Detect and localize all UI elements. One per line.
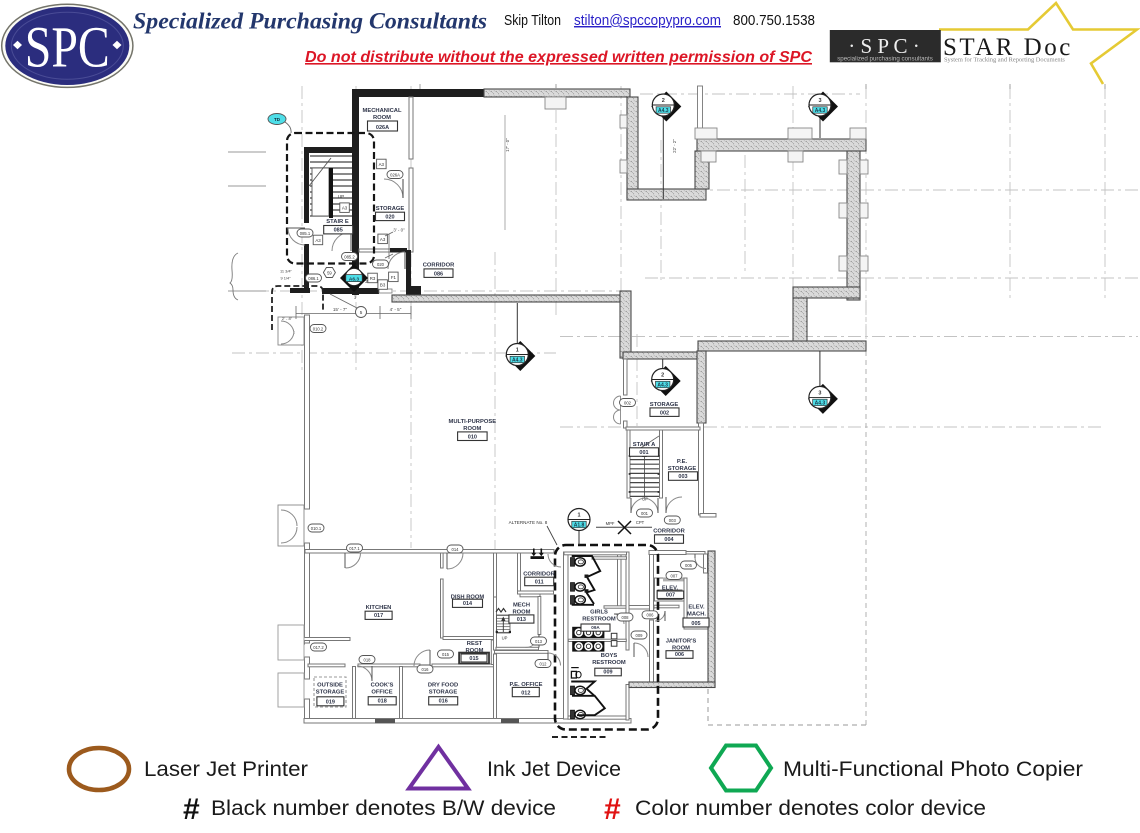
svg-text:ALTERNATE No. 8: ALTERNATE No. 8 bbox=[509, 520, 548, 525]
svg-text:009: 009 bbox=[636, 633, 644, 638]
svg-text:A3: A3 bbox=[342, 206, 348, 211]
svg-text:001: 001 bbox=[639, 450, 648, 456]
svg-text:· S P C ·: · S P C · bbox=[848, 34, 920, 58]
svg-text:005: 005 bbox=[691, 621, 700, 627]
svg-text:STORAGE: STORAGE bbox=[429, 689, 458, 695]
svg-text:#: # bbox=[183, 793, 200, 826]
svg-text:CORRIDOR: CORRIDOR bbox=[653, 529, 685, 535]
svg-text:STORAGE: STORAGE bbox=[650, 402, 679, 408]
svg-text:UP: UP bbox=[502, 636, 508, 641]
svg-text:013: 013 bbox=[535, 639, 543, 644]
svg-text:A4.3: A4.3 bbox=[658, 108, 669, 114]
svg-text:3: 3 bbox=[818, 98, 821, 104]
svg-text:010.1: 010.1 bbox=[311, 526, 322, 531]
svg-text:System for Tracking and Report: System for Tracking and Reporting Docume… bbox=[944, 57, 1065, 64]
svg-text:09A: 09A bbox=[591, 625, 600, 630]
svg-text:3: 3 bbox=[818, 391, 821, 397]
svg-text:JANITOR'S: JANITOR'S bbox=[666, 639, 697, 645]
svg-text:086: 086 bbox=[434, 271, 443, 277]
svg-text:A1.8: A1.8 bbox=[574, 523, 585, 529]
svg-text:MACH.: MACH. bbox=[687, 611, 706, 617]
svg-text:017.2: 017.2 bbox=[313, 645, 324, 650]
svg-text:BOYS: BOYS bbox=[601, 653, 618, 659]
svg-text:B3: B3 bbox=[380, 283, 386, 288]
svg-text:015: 015 bbox=[442, 652, 450, 657]
svg-text:4' - 5": 4' - 5" bbox=[390, 307, 402, 312]
svg-text:005: 005 bbox=[685, 563, 693, 568]
svg-text:ROOM: ROOM bbox=[373, 115, 391, 121]
svg-text:DRY FOOD: DRY FOOD bbox=[428, 683, 458, 689]
svg-text:012: 012 bbox=[521, 690, 530, 696]
svg-text:1: 1 bbox=[516, 348, 519, 354]
svg-text:2' - 8": 2' - 8" bbox=[282, 316, 293, 321]
svg-text:9 1/4": 9 1/4" bbox=[280, 276, 291, 281]
svg-text:MECH: MECH bbox=[513, 603, 530, 609]
svg-text:008: 008 bbox=[622, 615, 630, 620]
svg-text:STORAGE: STORAGE bbox=[668, 466, 697, 472]
svg-text:1: 1 bbox=[577, 513, 580, 519]
svg-text:2: 2 bbox=[662, 98, 665, 104]
svg-text:stilton@spccopypro.com: stilton@spccopypro.com bbox=[574, 13, 721, 29]
svg-text:Do not distribute without the: Do not distribute without the expressed … bbox=[305, 49, 812, 66]
svg-text:17' - 0": 17' - 0" bbox=[505, 138, 510, 152]
svg-text:018: 018 bbox=[364, 657, 372, 662]
svg-text:019: 019 bbox=[326, 700, 335, 706]
svg-text:TD: TD bbox=[274, 117, 281, 122]
svg-text:RESTROOM: RESTROOM bbox=[592, 660, 626, 666]
svg-text:001: 001 bbox=[641, 511, 649, 516]
svg-text:5: 5 bbox=[360, 310, 363, 315]
svg-text:013: 013 bbox=[517, 617, 526, 623]
svg-text:085.1: 085.1 bbox=[300, 231, 311, 236]
svg-text:P.E.: P.E. bbox=[677, 459, 688, 465]
svg-text:CORRIDOR: CORRIDOR bbox=[523, 572, 555, 578]
svg-text:REST: REST bbox=[467, 641, 483, 647]
svg-text:CORRIDOR: CORRIDOR bbox=[423, 263, 455, 269]
svg-text:F1: F1 bbox=[391, 275, 397, 280]
svg-text:OFFICE: OFFICE bbox=[371, 689, 392, 695]
svg-text:014: 014 bbox=[463, 601, 473, 607]
svg-text:Black number denotes B/W devic: Black number denotes B/W device bbox=[211, 797, 556, 820]
svg-text:MECHANICAL: MECHANICAL bbox=[363, 108, 402, 114]
svg-text:007: 007 bbox=[671, 573, 679, 578]
svg-text:Specialized Purchasing Consult: Specialized Purchasing Consultants bbox=[133, 9, 487, 35]
svg-text:016: 016 bbox=[422, 667, 430, 672]
svg-text:085: 085 bbox=[334, 228, 343, 234]
svg-text:A4.3: A4.3 bbox=[657, 383, 668, 389]
svg-text:002: 002 bbox=[660, 410, 669, 416]
svg-text:22' - 2": 22' - 2" bbox=[672, 139, 677, 153]
svg-text:026A: 026A bbox=[376, 125, 389, 131]
svg-text:#: # bbox=[604, 793, 621, 826]
svg-text:Color number denotes color dev: Color number denotes color device bbox=[635, 797, 986, 820]
svg-text:014: 014 bbox=[452, 547, 460, 552]
svg-text:017: 017 bbox=[374, 613, 383, 619]
svg-text:017.1: 017.1 bbox=[349, 546, 360, 551]
svg-text:MPF: MPF bbox=[606, 521, 615, 526]
svg-text:011: 011 bbox=[535, 580, 544, 586]
svg-text:Skip Tilton: Skip Tilton bbox=[504, 13, 561, 29]
svg-text:STAIR E: STAIR E bbox=[326, 219, 349, 225]
svg-text:59: 59 bbox=[327, 271, 332, 276]
svg-text:015: 015 bbox=[469, 656, 478, 662]
svg-text:006: 006 bbox=[675, 652, 684, 658]
svg-text:020: 020 bbox=[385, 214, 394, 220]
svg-text:016: 016 bbox=[439, 699, 448, 705]
svg-text:COOK'S: COOK'S bbox=[371, 683, 394, 689]
svg-text:A3: A3 bbox=[380, 237, 386, 242]
svg-text:specialized purchasing consult: specialized purchasing consultants bbox=[837, 56, 933, 63]
svg-text:085.2: 085.2 bbox=[344, 254, 355, 259]
svg-text:003: 003 bbox=[669, 518, 677, 523]
svg-text:007: 007 bbox=[666, 592, 675, 598]
svg-text:R3: R3 bbox=[370, 276, 376, 281]
svg-text:Ink Jet Device: Ink Jet Device bbox=[487, 758, 621, 781]
svg-text:GIRLS: GIRLS bbox=[590, 610, 608, 616]
svg-text:STORAGE: STORAGE bbox=[316, 689, 345, 695]
svg-text:2: 2 bbox=[661, 373, 664, 379]
svg-text:A4.3: A4.3 bbox=[512, 358, 523, 364]
svg-text:A4.3: A4.3 bbox=[815, 401, 826, 407]
svg-text:010.2: 010.2 bbox=[313, 326, 324, 331]
svg-text:009: 009 bbox=[603, 670, 612, 676]
svg-text:Laser Jet Printer: Laser Jet Printer bbox=[144, 758, 308, 781]
svg-text:006: 006 bbox=[647, 613, 655, 618]
svg-text:A3: A3 bbox=[315, 238, 321, 243]
svg-text:018: 018 bbox=[378, 699, 387, 705]
svg-text:026A: 026A bbox=[390, 172, 400, 177]
svg-text:Multi-Functional Photo Copier: Multi-Functional Photo Copier bbox=[783, 758, 1083, 781]
svg-text:A6.3: A6.3 bbox=[349, 276, 359, 282]
svg-text:SPC: SPC bbox=[25, 15, 110, 80]
svg-text:STORAGE: STORAGE bbox=[376, 206, 405, 212]
svg-text:004: 004 bbox=[664, 537, 674, 543]
svg-text:ELEV.: ELEV. bbox=[688, 605, 705, 611]
svg-text:OUTSIDE: OUTSIDE bbox=[317, 683, 343, 689]
svg-text:012: 012 bbox=[540, 661, 548, 666]
svg-text:15' - 7": 15' - 7" bbox=[333, 307, 348, 312]
svg-text:ROOM: ROOM bbox=[463, 426, 481, 432]
svg-text:CPT: CPT bbox=[636, 520, 645, 525]
svg-text:086.1: 086.1 bbox=[308, 276, 319, 281]
svg-text:003: 003 bbox=[678, 474, 687, 480]
svg-text:020: 020 bbox=[377, 262, 385, 267]
svg-text:RESTROOM: RESTROOM bbox=[582, 616, 616, 622]
svg-text:STAIR A: STAIR A bbox=[633, 442, 656, 448]
svg-text:800.750.1538: 800.750.1538 bbox=[733, 13, 815, 29]
svg-text:KITCHEN: KITCHEN bbox=[366, 605, 392, 611]
svg-text:A4.3: A4.3 bbox=[815, 108, 826, 114]
svg-text:010: 010 bbox=[468, 434, 477, 440]
svg-text:UP: UP bbox=[338, 194, 344, 199]
svg-text:002: 002 bbox=[624, 400, 632, 405]
svg-text:A3: A3 bbox=[379, 162, 385, 167]
svg-text:3' - 0": 3' - 0" bbox=[393, 228, 405, 233]
svg-text:MULTI-PURPOSE: MULTI-PURPOSE bbox=[449, 419, 497, 425]
svg-text:11 3/4": 11 3/4" bbox=[280, 269, 293, 274]
